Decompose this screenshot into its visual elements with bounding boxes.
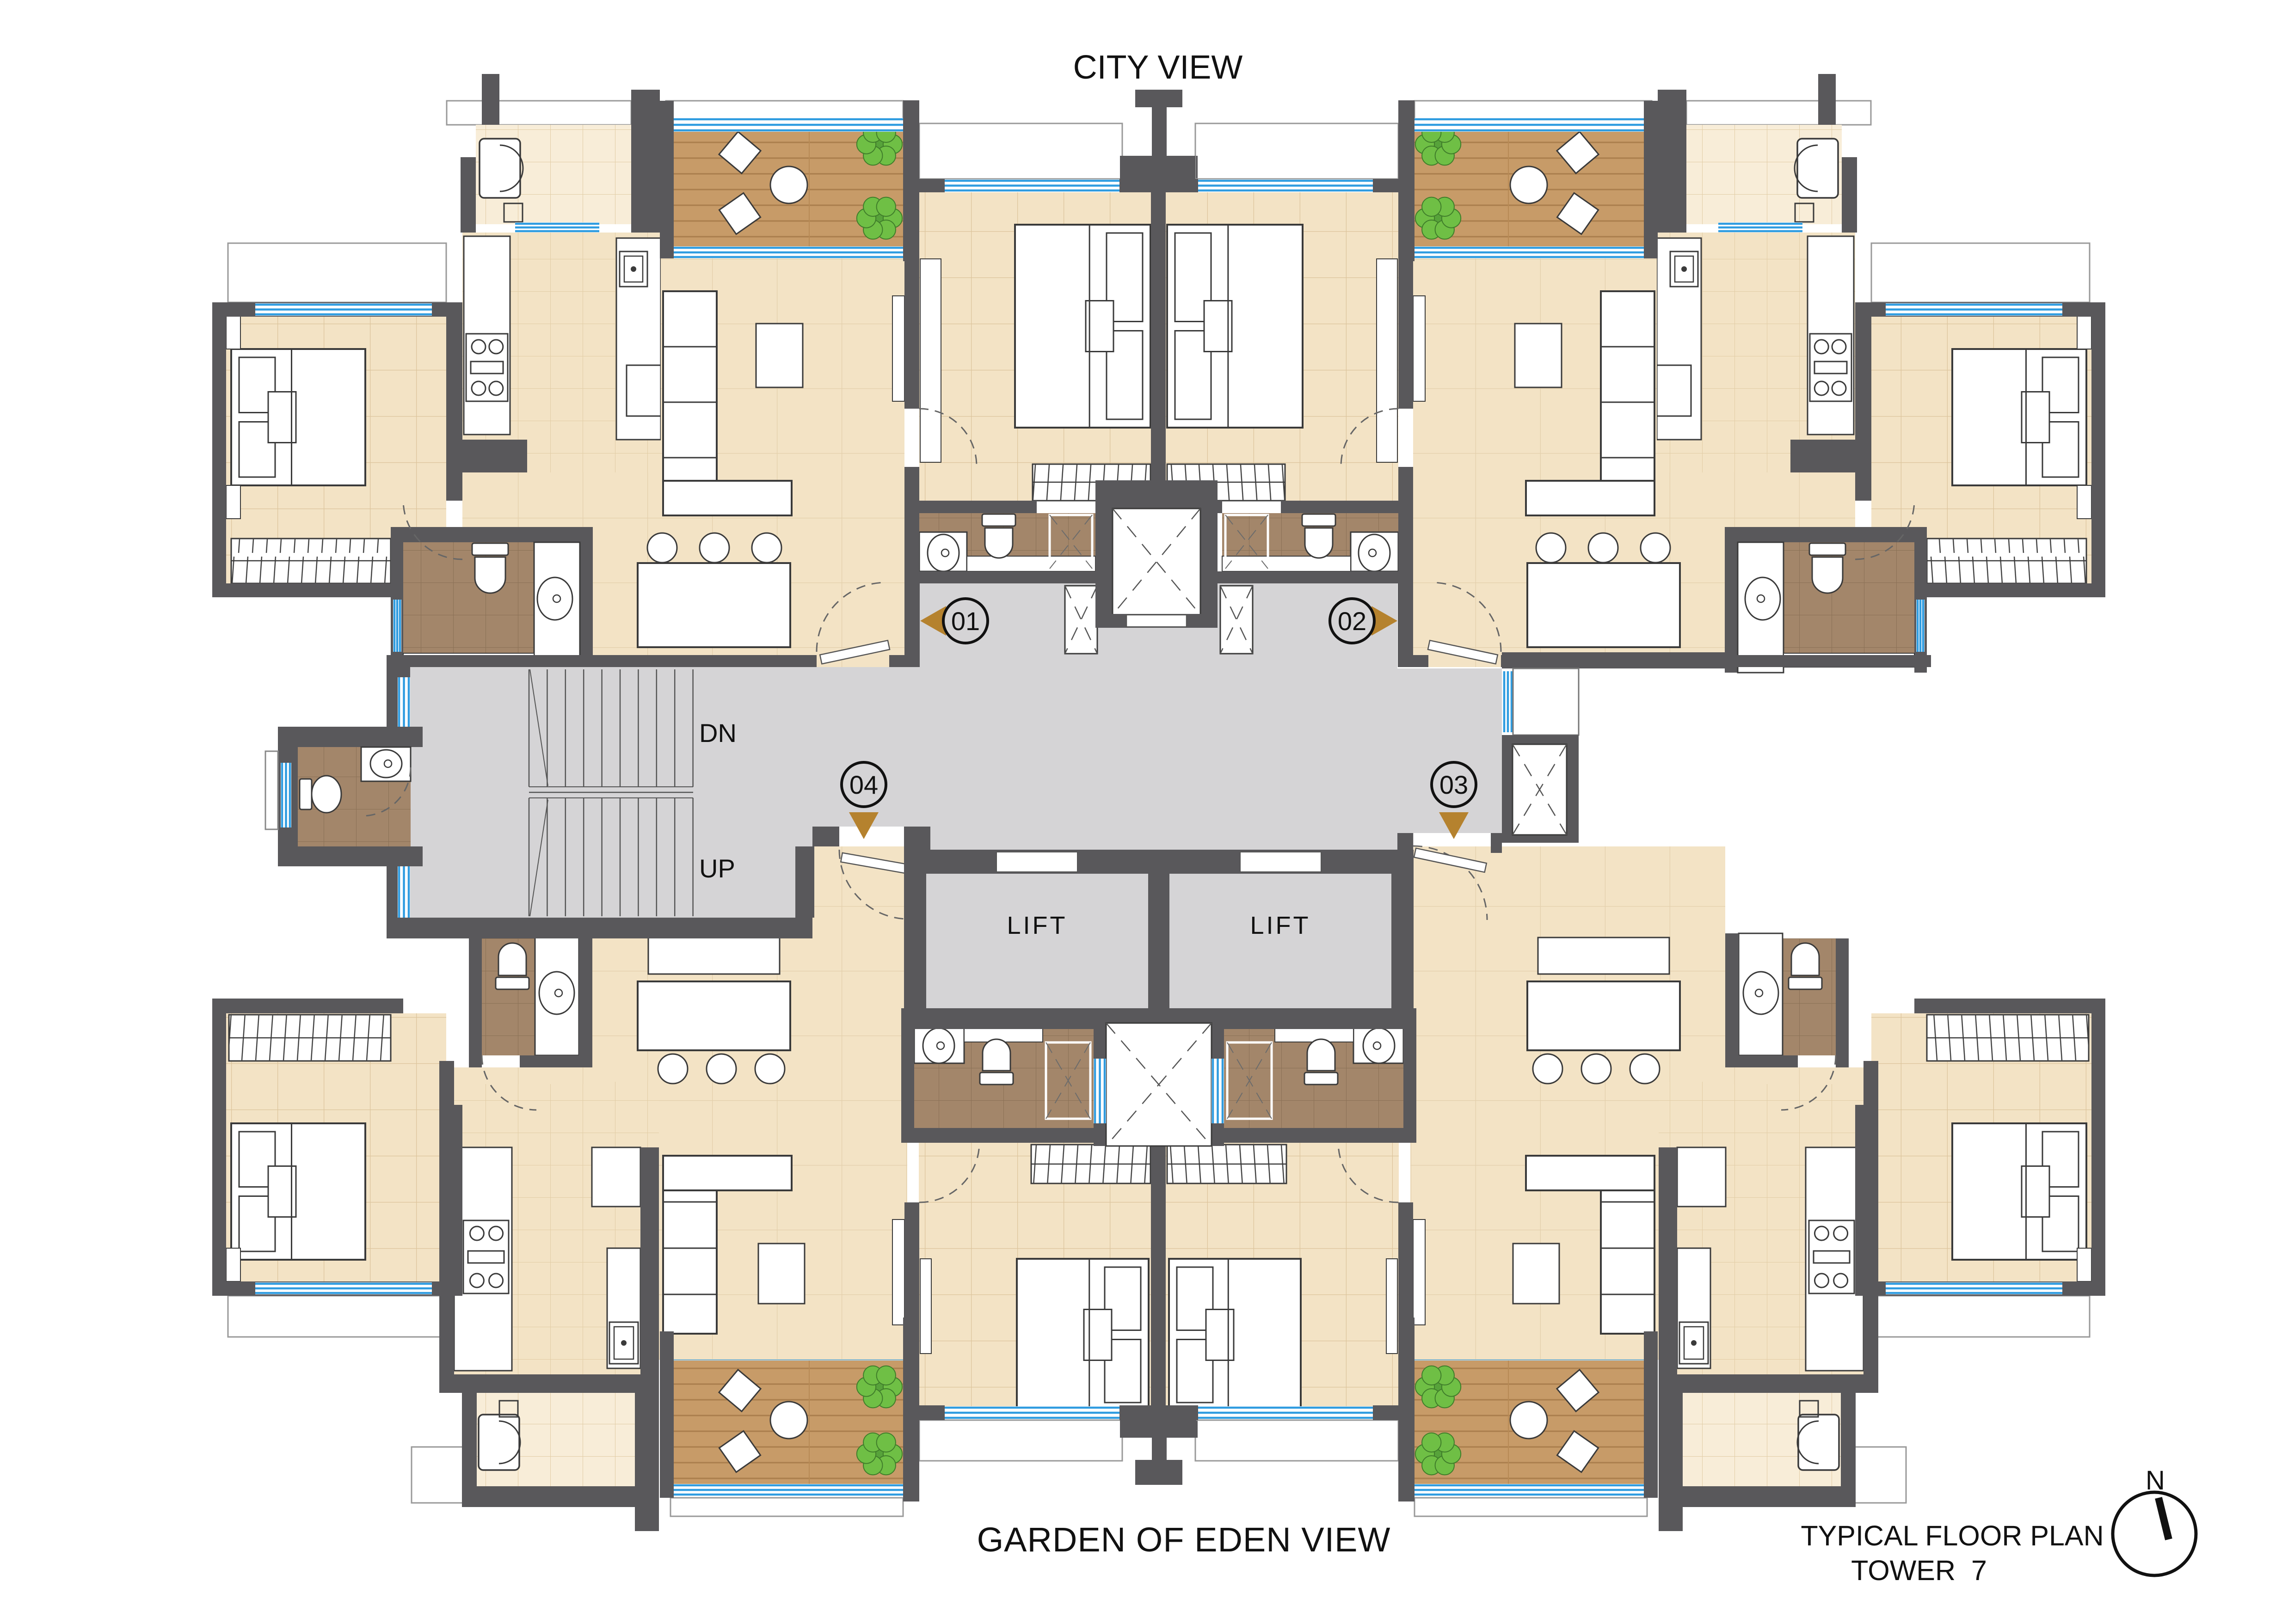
- svg-text:DN: DN: [699, 718, 737, 748]
- svg-text:CITY VIEW: CITY VIEW: [1073, 49, 1243, 86]
- svg-text:TOWER 7: TOWER 7: [1851, 1555, 1987, 1586]
- svg-text:LIFT: LIFT: [1007, 912, 1067, 939]
- svg-text:UP: UP: [699, 854, 735, 883]
- svg-text:03: 03: [1439, 770, 1468, 799]
- svg-text:TYPICAL FLOOR PLAN: TYPICAL FLOOR PLAN: [1801, 1520, 2103, 1551]
- svg-text:GARDEN OF EDEN VIEW: GARDEN OF EDEN VIEW: [977, 1520, 1391, 1559]
- svg-text:LIFT: LIFT: [1250, 912, 1310, 939]
- svg-text:04: 04: [849, 770, 878, 799]
- svg-text:02: 02: [1338, 607, 1366, 636]
- svg-text:N: N: [2146, 1465, 2165, 1495]
- svg-text:01: 01: [951, 607, 980, 636]
